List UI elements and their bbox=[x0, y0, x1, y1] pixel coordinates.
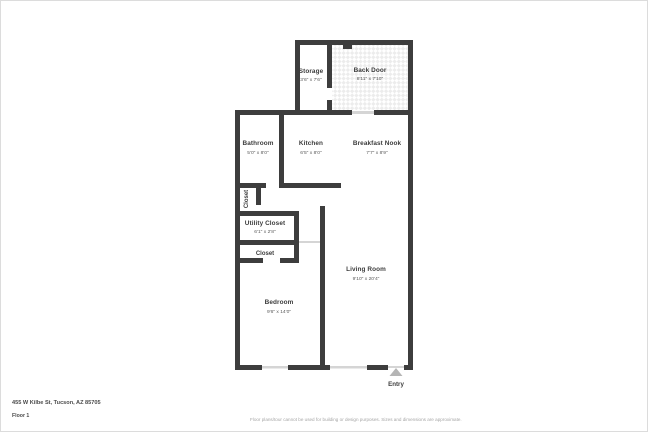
room-label-bathroom: Bathroom bbox=[243, 140, 274, 147]
wall-segment bbox=[295, 40, 413, 45]
entry-label: Entry bbox=[388, 381, 404, 388]
wall-segment bbox=[279, 183, 341, 188]
window-segment bbox=[330, 366, 367, 369]
wall-segment bbox=[280, 258, 299, 263]
wall-segment bbox=[235, 365, 262, 370]
wall-segment bbox=[295, 40, 300, 112]
room-label-storage: Storage bbox=[299, 68, 324, 75]
room-label-closet-lower: Closet bbox=[256, 251, 274, 257]
wall-segment bbox=[327, 40, 332, 88]
room-dims-living-room: 9'10" x 20'4" bbox=[353, 276, 380, 282]
room-label-back-door: Back Door bbox=[354, 67, 387, 74]
door-opening bbox=[299, 241, 320, 243]
room-dims-bedroom: 9'6" x 14'0" bbox=[267, 309, 291, 315]
room-label-bedroom: Bedroom bbox=[265, 299, 294, 306]
room-label-closet-upper: Closet bbox=[244, 190, 250, 208]
footer-address: 455 W Kilbe St, Tucson, AZ 85705 bbox=[12, 400, 101, 406]
footer-disclaimer: Floor plans/tour cannot be used for buil… bbox=[250, 417, 462, 422]
wall-segment bbox=[320, 206, 325, 370]
room-dims-bathroom: 5'0" x 8'0" bbox=[247, 150, 269, 156]
room-dims-back-door: 8'11" x 7'10" bbox=[357, 76, 384, 82]
wall-segment bbox=[235, 211, 299, 216]
room-label-living-room: Living Room bbox=[346, 266, 386, 273]
entry-arrow-icon bbox=[390, 368, 403, 376]
wall-segment bbox=[235, 240, 294, 245]
door-opening bbox=[352, 111, 374, 114]
footer: 455 W Kilbe St, Tucson, AZ 85705 Floor 1… bbox=[12, 400, 462, 422]
room-label-breakfast-nook: Breakfast Nook bbox=[353, 140, 402, 147]
room-dims-storage: 3'6" x 7'6" bbox=[300, 77, 322, 83]
back-door-jamb bbox=[343, 45, 352, 49]
wall-segment bbox=[256, 183, 261, 205]
wall-segment bbox=[235, 110, 352, 115]
room-dims-breakfast-nook: 7'7" x 8'9" bbox=[366, 150, 388, 156]
room-label-kitchen: Kitchen bbox=[299, 140, 323, 147]
room-dims-kitchen: 6'5" x 8'0" bbox=[300, 150, 322, 156]
wall-segment bbox=[408, 40, 413, 370]
wall-segment bbox=[404, 365, 413, 370]
floorplan-diagram: Storage 3'6" x 7'6" Back Door 8'11" x 7'… bbox=[0, 0, 650, 434]
wall-segment bbox=[235, 258, 263, 263]
wall-segment bbox=[294, 211, 299, 245]
entry-threshold bbox=[388, 366, 404, 368]
wall-segment bbox=[235, 183, 266, 188]
room-dims-utility-closet: 6'1" x 2'8" bbox=[254, 229, 276, 235]
wall-segment bbox=[279, 110, 284, 188]
room-label-utility-closet: Utility Closet bbox=[245, 220, 286, 227]
wall-segment bbox=[367, 365, 388, 370]
window-segment bbox=[262, 366, 288, 369]
wall-segment bbox=[374, 110, 413, 115]
footer-floor-label: Floor 1 bbox=[12, 413, 29, 419]
